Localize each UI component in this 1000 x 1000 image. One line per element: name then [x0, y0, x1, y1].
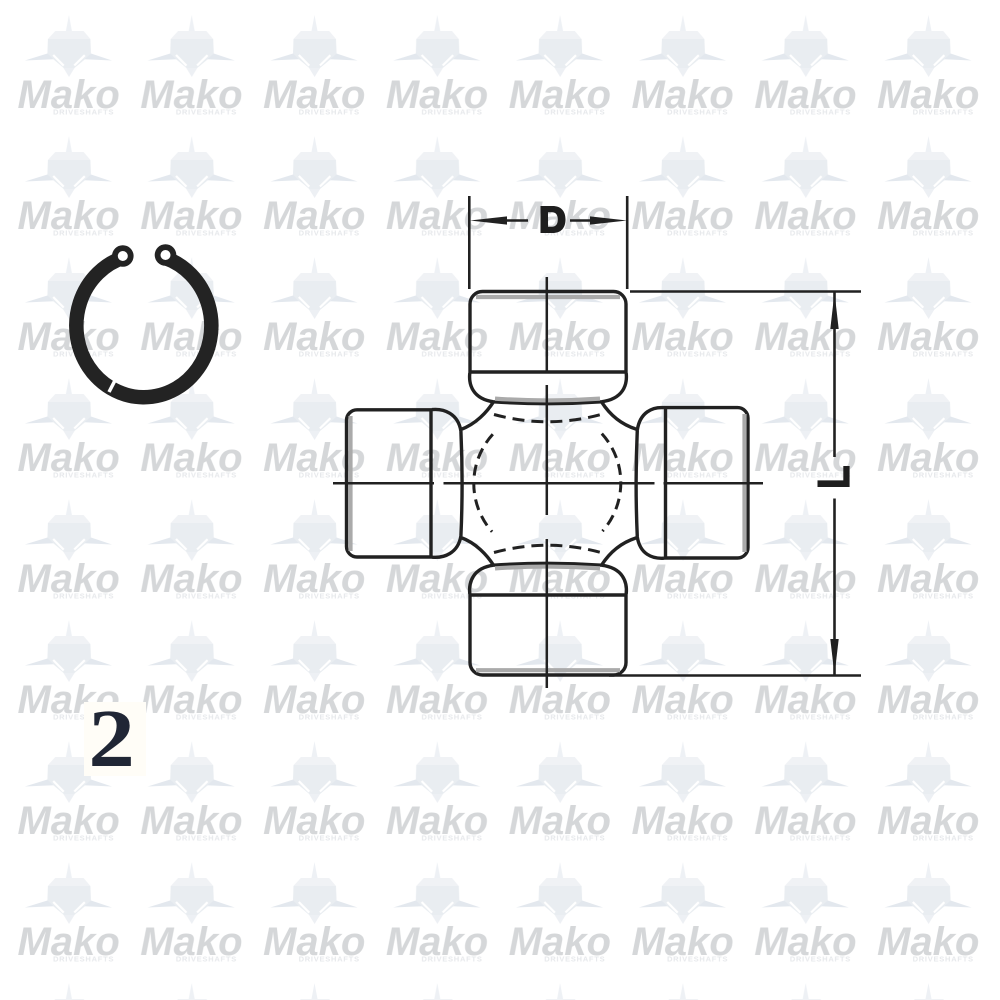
- svg-text:2: 2: [88, 693, 134, 785]
